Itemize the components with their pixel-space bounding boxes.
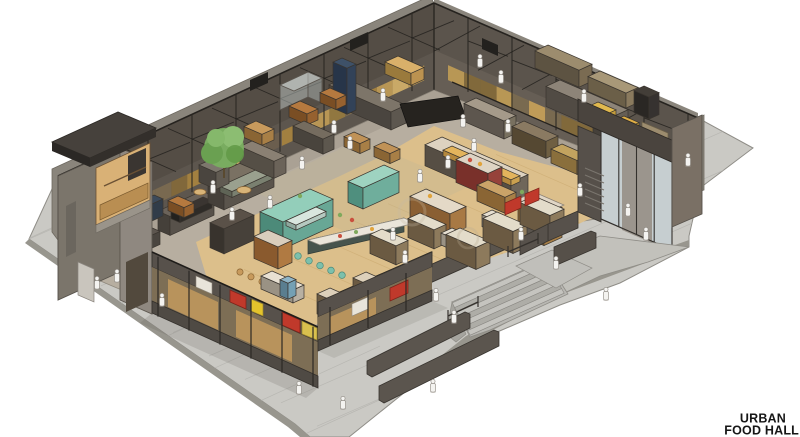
svg-text:FOOD HALL: FOOD HALL [724,424,799,437]
